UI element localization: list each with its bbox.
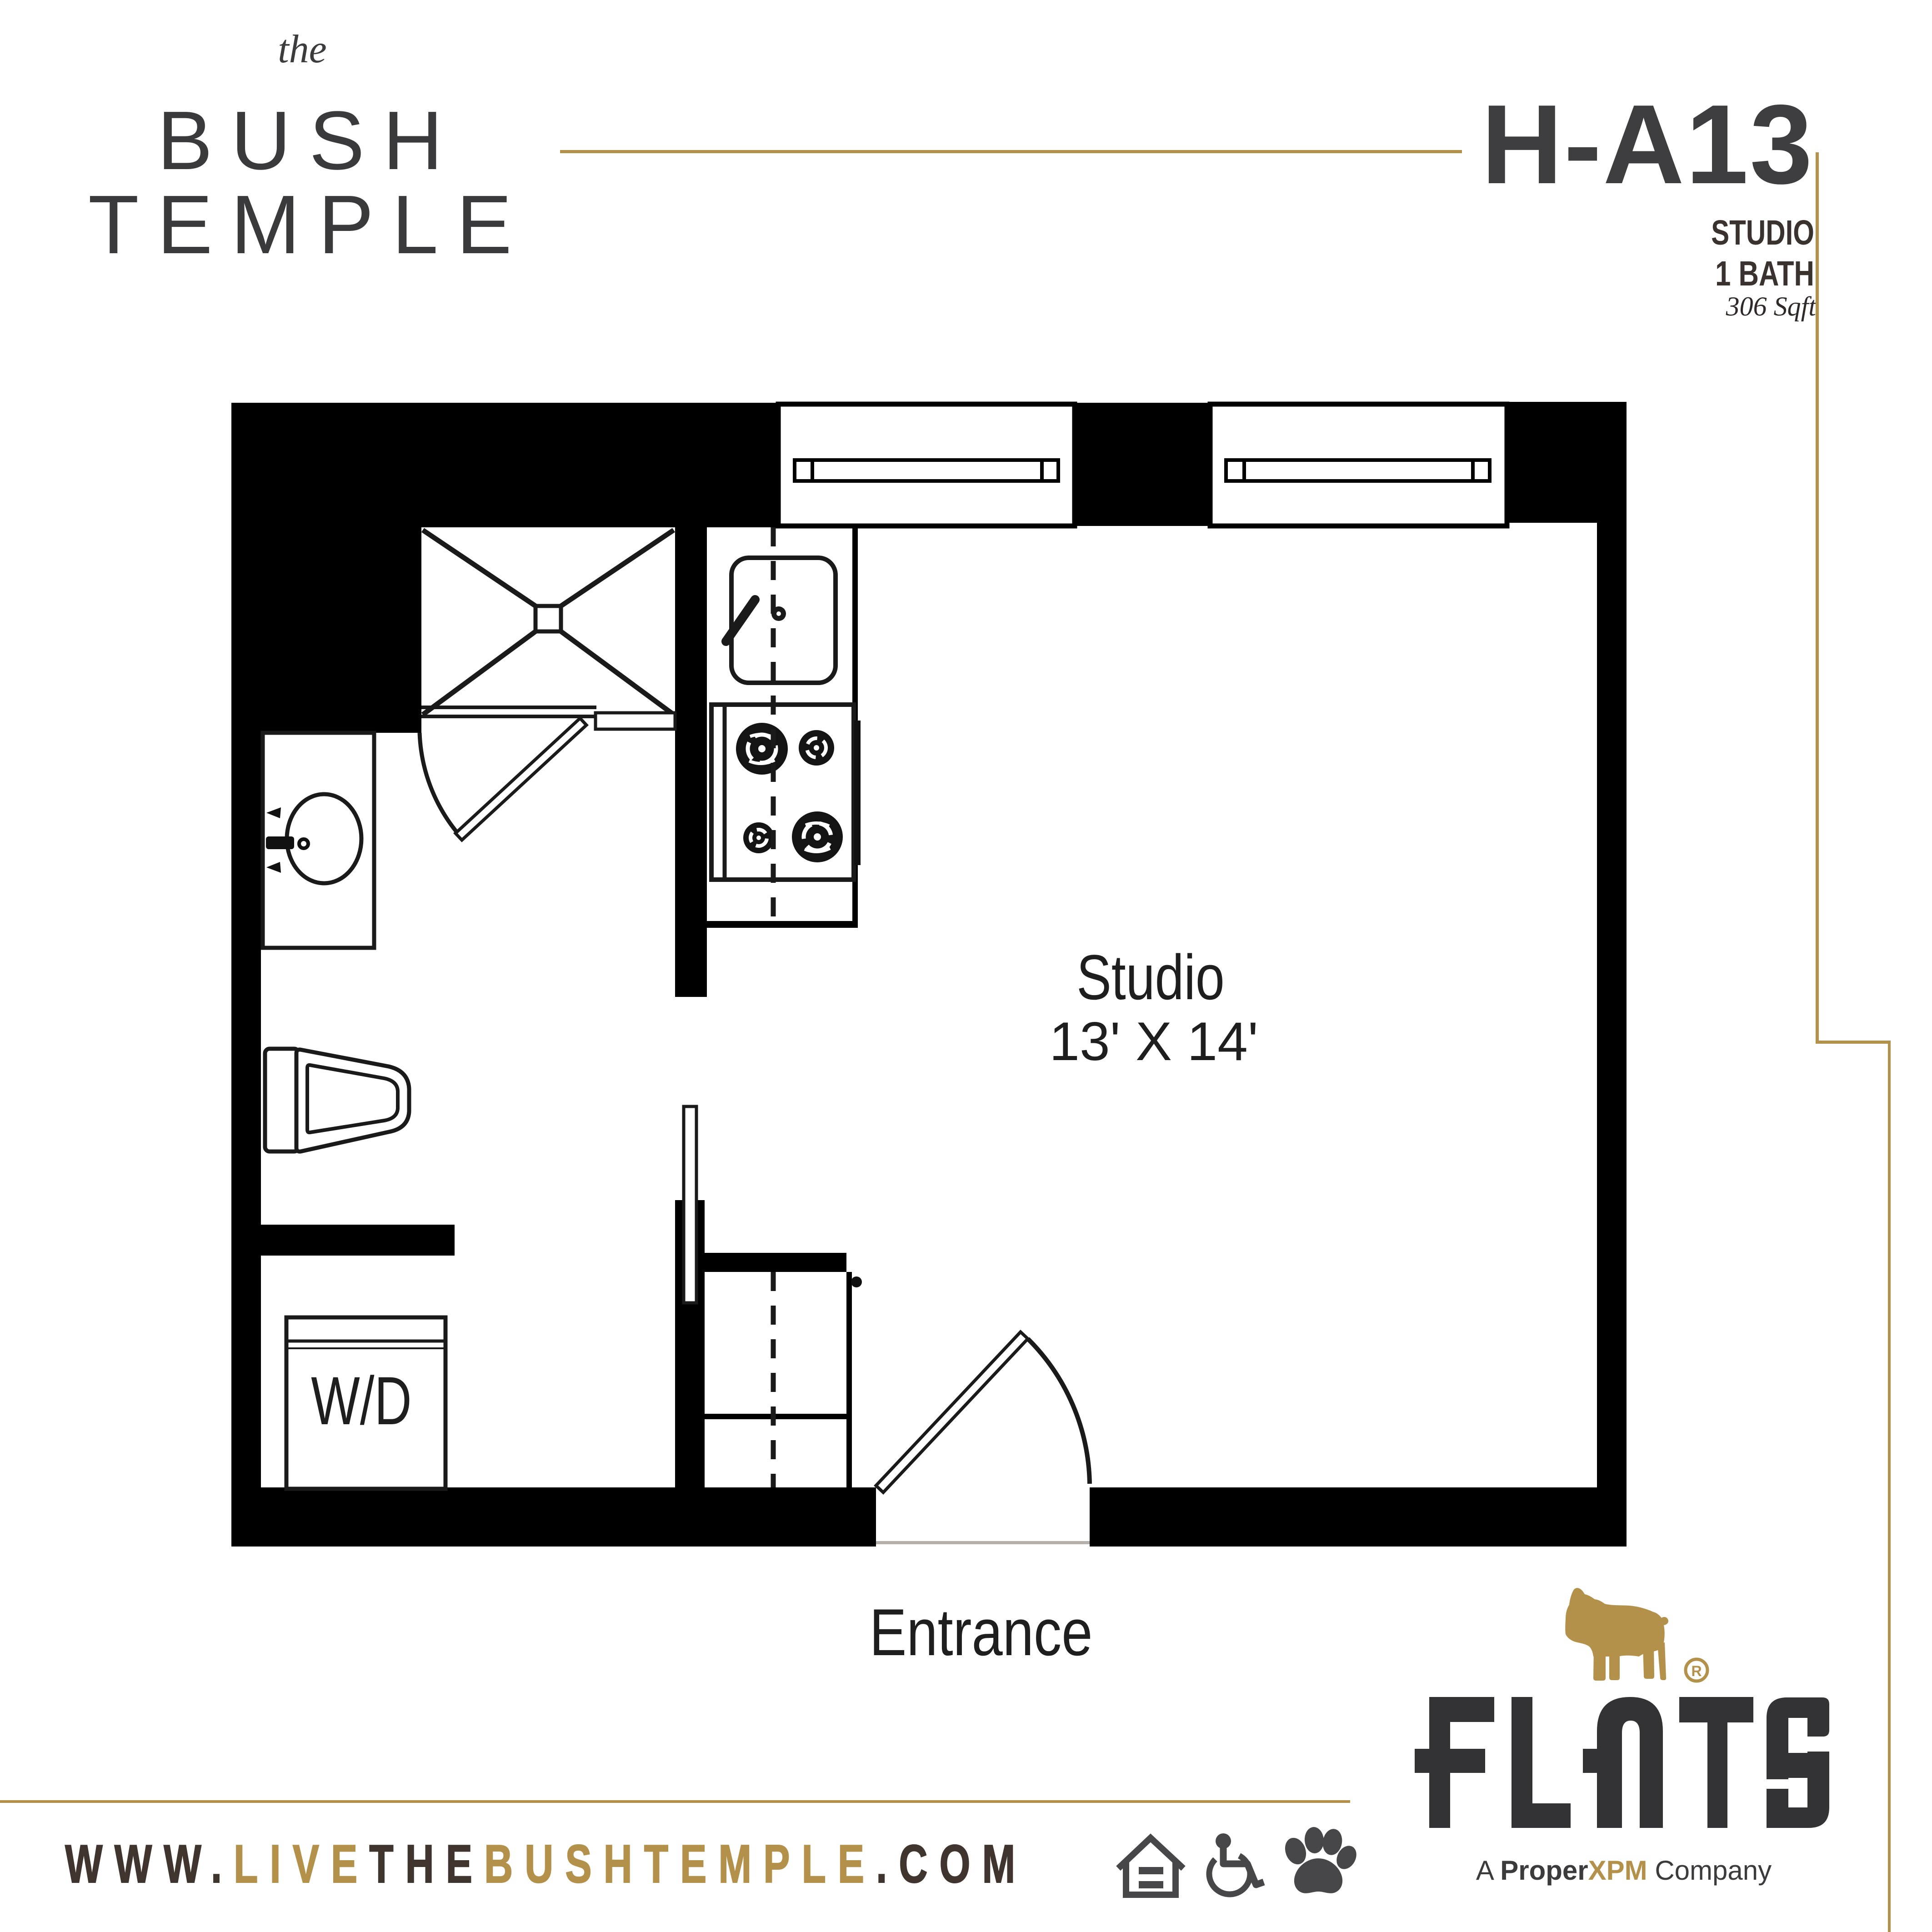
svg-text:R: R bbox=[1691, 1663, 1702, 1679]
